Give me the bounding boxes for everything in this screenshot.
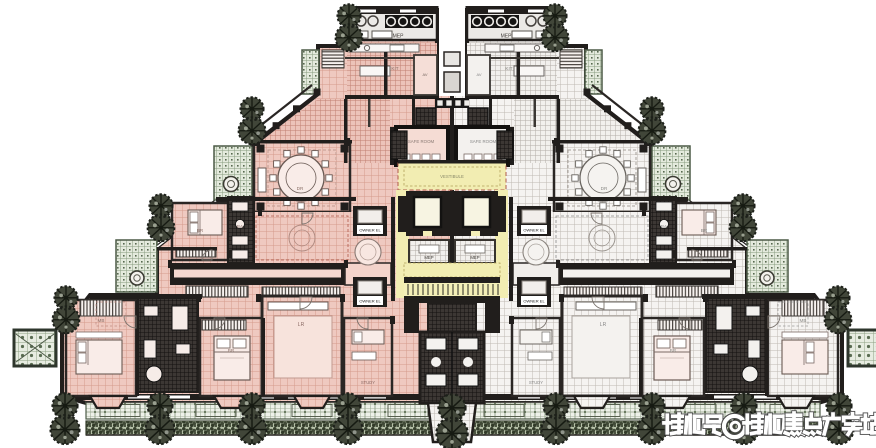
svg-text:MEP: MEP: [470, 255, 479, 260]
svg-text:OWNER EL: OWNER EL: [359, 299, 381, 304]
svg-text:STUDY: STUDY: [529, 380, 543, 385]
svg-text:OWNER EL: OWNER EL: [523, 228, 545, 233]
svg-text:BA: BA: [237, 224, 244, 229]
svg-text:SAFE ROOM: SAFE ROOM: [408, 139, 435, 144]
svg-text:LR: LR: [600, 322, 607, 328]
svg-text:MB: MB: [800, 318, 807, 323]
svg-text:BR: BR: [228, 348, 235, 353]
svg-text:KIT: KIT: [505, 66, 512, 71]
svg-text:MB: MB: [98, 318, 105, 323]
svg-text:MEP: MEP: [424, 255, 433, 260]
svg-text:MEP: MEP: [501, 34, 513, 40]
svg-text:KIT: KIT: [391, 66, 398, 71]
svg-text:DR: DR: [297, 186, 304, 191]
svg-text:OWNER EL: OWNER EL: [523, 299, 545, 304]
svg-text:BR: BR: [670, 348, 677, 353]
svg-text:OWNER EL: OWNER EL: [359, 228, 381, 233]
svg-text:AV: AV: [422, 72, 427, 77]
svg-text:BA: BA: [661, 224, 668, 229]
svg-text:SAFE ROOM: SAFE ROOM: [470, 139, 497, 144]
svg-text:DR: DR: [601, 186, 608, 191]
svg-text:STUDY: STUDY: [361, 380, 375, 385]
svg-text:AV: AV: [476, 72, 481, 77]
svg-text:BR: BR: [197, 228, 204, 233]
svg-text:MEP: MEP: [393, 34, 405, 40]
svg-text:VESTIBULE: VESTIBULE: [440, 174, 464, 179]
svg-text:BR: BR: [701, 228, 708, 233]
svg-text:LR: LR: [298, 322, 305, 328]
